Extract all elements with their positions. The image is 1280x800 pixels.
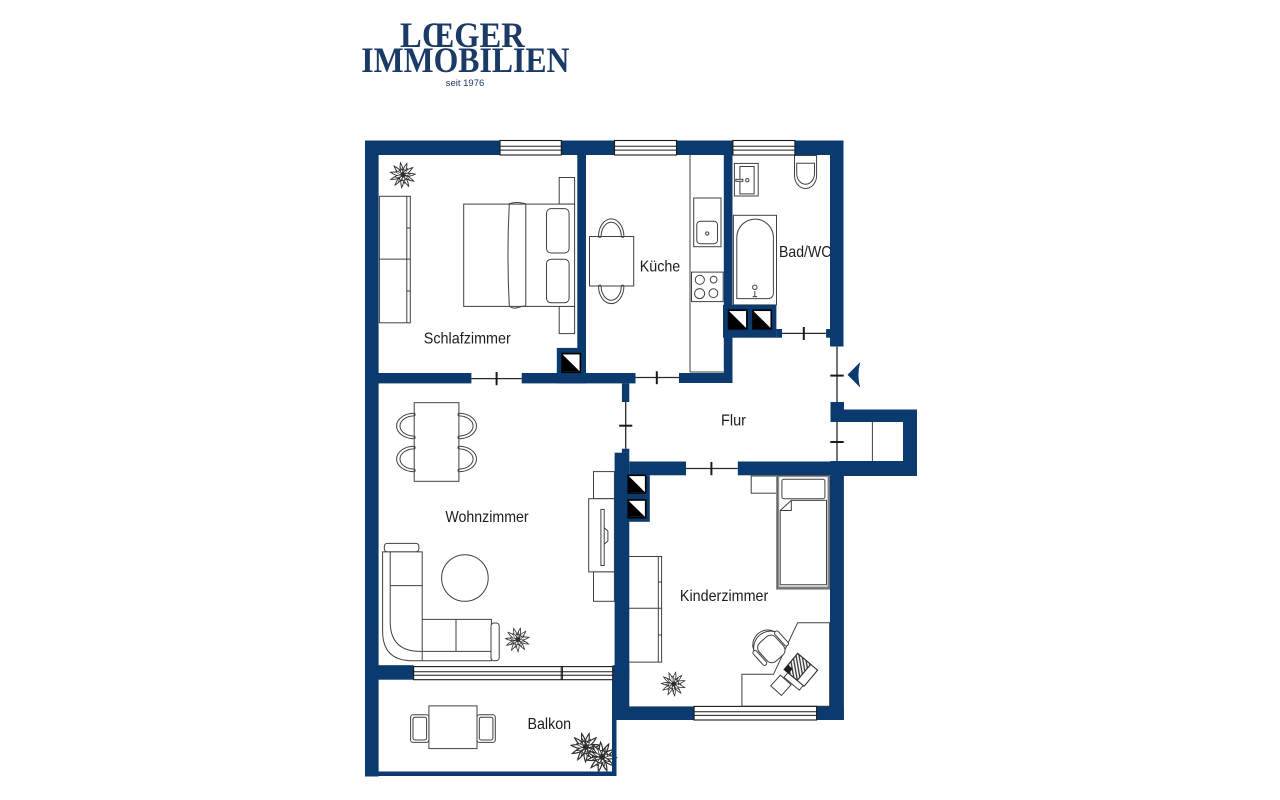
svg-text:Flur: Flur [721,412,746,429]
svg-text:Balkon: Balkon [527,716,571,733]
svg-text:Bad/WC: Bad/WC [779,244,831,261]
svg-text:Küche: Küche [640,259,681,276]
svg-text:IMMOBILIEN: IMMOBILIEN [361,40,569,80]
svg-text:Kinderzimmer: Kinderzimmer [680,588,768,605]
svg-text:seit 1976: seit 1976 [446,77,485,88]
svg-text:Schlafzimmer: Schlafzimmer [424,331,511,348]
svg-text:Wohnzimmer: Wohnzimmer [445,509,528,526]
